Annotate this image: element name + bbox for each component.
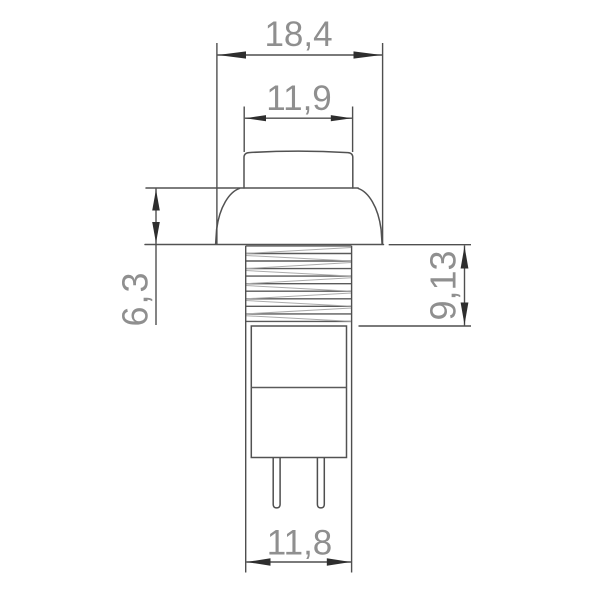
svg-text:6,3: 6,3: [115, 270, 156, 326]
svg-text:9,13: 9,13: [423, 250, 464, 320]
svg-text:18,4: 18,4: [264, 15, 332, 54]
svg-text:11,8: 11,8: [267, 524, 333, 563]
svg-text:11,9: 11,9: [266, 79, 332, 118]
